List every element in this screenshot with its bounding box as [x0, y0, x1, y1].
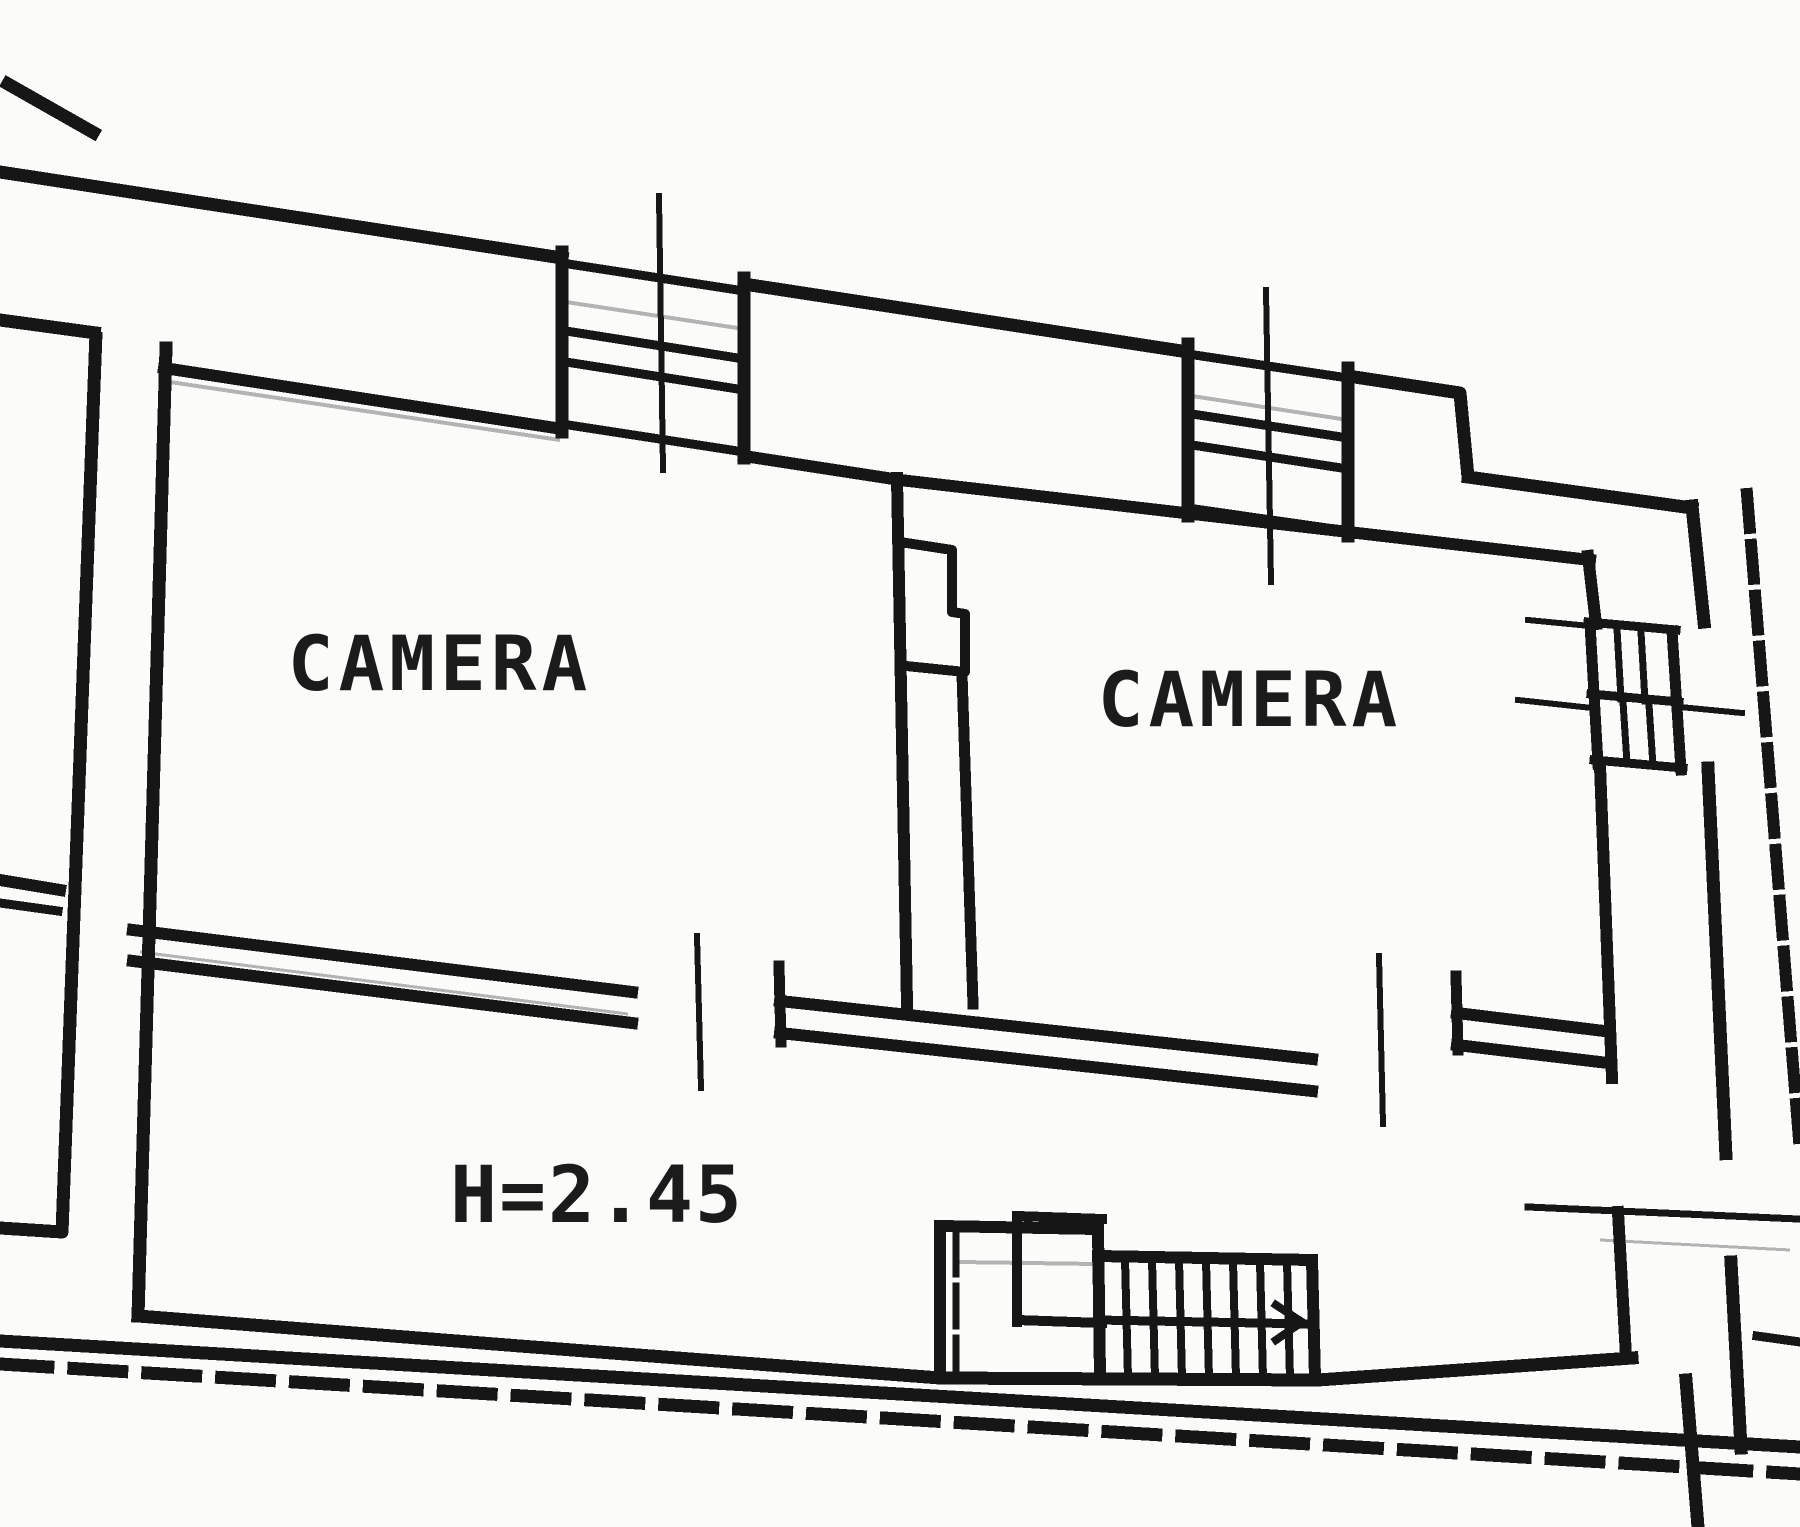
floor-plan-canvas: CAMERA CAMERA H=2.45: [0, 0, 1800, 1527]
scan-ghost-line: [1600, 1240, 1790, 1250]
party-wall-left-inner: [138, 348, 166, 1316]
exterior-wall-top-left: [0, 172, 562, 258]
door-camera-left-axis-tick: [697, 936, 701, 1088]
divider-wall-pilaster: [900, 542, 965, 672]
stair-right-edge: [1312, 1260, 1315, 1378]
bottom-right-stub: [1757, 1336, 1800, 1342]
bottom-wall-segment-b-top: [780, 1001, 1312, 1059]
window-sill-line: [1591, 694, 1679, 702]
window-inner-edge: [562, 424, 744, 452]
door-camera-right-axis-tick: [1379, 956, 1383, 1124]
room-label-camera-left: CAMERA: [288, 619, 593, 708]
window-right-wall-symbol: [1518, 620, 1742, 770]
door-right-wall-symbol: [1528, 1207, 1798, 1219]
window-axis-tick: [1680, 707, 1742, 713]
window-top-right-symbol: [1188, 290, 1348, 582]
window-axis-tick: [1528, 620, 1590, 626]
stair-mid-rail: [1098, 1320, 1312, 1324]
exterior-wall-right-middle: [1708, 768, 1726, 1157]
neighbor-wall-right-dashed: [1747, 494, 1800, 1152]
window-sill-line: [566, 331, 744, 359]
divider-wall-right-face: [962, 674, 973, 1004]
right-wall-below-bottom: [1686, 1380, 1698, 1527]
camera-left-top-wall-right: [744, 456, 900, 480]
scan-ghost-line: [170, 382, 560, 440]
window-axis-tick: [1518, 700, 1592, 708]
exterior-wall-top-left-stub: [8, 84, 96, 134]
window-outer-edge: [562, 263, 744, 291]
window-center-axis: [659, 196, 663, 470]
stair-landing-top: [1017, 1216, 1102, 1219]
window-mullion: [1641, 632, 1645, 701]
left-wall-stub-lower: [0, 903, 58, 911]
scan-ghost-line: [566, 302, 744, 329]
divider-wall-left-face: [897, 478, 907, 1004]
bottom-wall-segment-b-bottom: [780, 1033, 1312, 1091]
window-top-left-symbol: [562, 196, 744, 470]
left-wall-stub-upper: [0, 880, 60, 890]
window-mullion: [1649, 705, 1653, 766]
exterior-wall-top-middle: [744, 284, 1188, 352]
window-inner-edge: [1594, 760, 1683, 768]
right-wall-inner-upper: [1588, 556, 1596, 624]
room-label-camera-right: CAMERA: [1098, 655, 1403, 744]
staircase-bottom: [940, 1216, 1315, 1378]
exterior-wall-bottom-outer: [0, 1341, 1800, 1447]
floor-plan-page: CAMERA CAMERA H=2.45: [0, 0, 1800, 1527]
exterior-wall-right-upper: [1692, 506, 1704, 622]
interior-walls: [0, 348, 1800, 1527]
annotation-ceiling-height: H=2.45: [450, 1151, 744, 1241]
bottom-wall-inner-face: [138, 1316, 1632, 1380]
exterior-wall-right-lower: [1731, 1262, 1741, 1448]
window-mullion: [1617, 629, 1621, 699]
window-sill-line: [566, 362, 744, 390]
door-axis-tick-long: [1528, 1207, 1798, 1219]
bottom-wall-segment-a-bottom: [133, 961, 632, 1023]
right-wall-inner-lower: [1618, 1212, 1626, 1356]
exterior-wall-top-right: [1348, 376, 1692, 508]
camera-left-top-wall: [164, 368, 562, 429]
window-mullion: [1623, 702, 1627, 763]
party-wall-left-outer: [0, 320, 96, 1232]
rooms-bottom-wall: [133, 930, 1608, 1124]
scan-ghost-line: [958, 1262, 1096, 1264]
bottom-wall-segment-c-top: [1457, 1013, 1604, 1031]
bottom-wall-segment-c-bottom: [1457, 1045, 1608, 1063]
stair-landing-bottom: [1017, 1320, 1102, 1323]
window-center-axis: [1266, 290, 1271, 582]
